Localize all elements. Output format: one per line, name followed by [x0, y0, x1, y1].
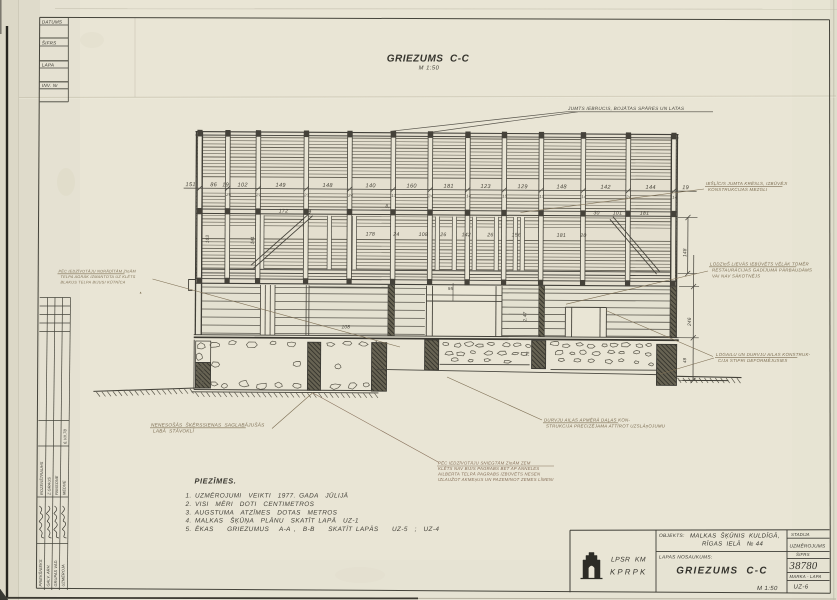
- svg-text:178: 178: [366, 232, 375, 238]
- svg-text:PĒC IEDZĪVOTĀJU SNIEGTĀM ZIņĀM: PĒC IEDZĪVOTĀJU SNIEGTĀM ZIņĀM ZEM: [438, 461, 531, 466]
- svg-text:181: 181: [640, 211, 649, 217]
- svg-text:AILBERTA TELPĀ PAGRABS IZBŪVĒT: AILBERTA TELPĀ PAGRABS IZBŪVĒTS NESEN: [437, 472, 541, 477]
- svg-text:73: 73: [525, 351, 530, 357]
- svg-text:GRIEZUMS C-C: GRIEZUMS C-C: [676, 566, 767, 577]
- svg-text:RESTAURĀCIJAS GADĪJUMĀ PĀRBAUD: RESTAURĀCIJAS GADĪJUMĀ PĀRBAUDĀMS: [712, 267, 812, 272]
- svg-text:UZMĒROJA: UZMĒROJA: [61, 564, 66, 587]
- svg-text:PIEZĪMES.: PIEZĪMES.: [195, 477, 237, 486]
- svg-text:142: 142: [462, 232, 471, 238]
- svg-text:102: 102: [238, 182, 249, 188]
- svg-text:15: 15: [502, 194, 508, 199]
- svg-text:UZMĒROJUMS: UZMĒROJUMS: [790, 544, 826, 550]
- svg-text:▲: ▲: [139, 291, 142, 295]
- svg-text:108: 108: [419, 232, 428, 238]
- svg-text:23: 23: [303, 192, 310, 197]
- svg-text:142: 142: [601, 185, 612, 191]
- svg-text:DURVJU AILAS APMĒRĀ DAĻAS KON-: DURVJU AILAS APMĒRĀ DAĻAS KON-: [544, 418, 630, 423]
- svg-text:LPSR KM: LPSR KM: [611, 557, 646, 564]
- svg-text:14: 14: [672, 195, 678, 200]
- svg-text:30: 30: [593, 210, 599, 216]
- svg-text:M 1:50: M 1:50: [757, 585, 778, 592]
- svg-text:GALV. ARH.: GALV. ARH.: [46, 564, 51, 586]
- svg-text:MARKA - LAPA: MARKA - LAPA: [790, 574, 822, 579]
- svg-text:PĒC IEDZĪVOTĀJU NORĀDĪTĀM ZIņĀ: PĒC IEDZĪVOTĀJU NORĀDĪTĀM ZIņĀM: [59, 269, 137, 274]
- svg-text:STADIJA: STADIJA: [791, 532, 810, 537]
- svg-text:TELPA AGRĀK IZMANTOTA UZ KLĒTS: TELPA AGRĀK IZMANTOTA UZ KLĒTS: [61, 274, 136, 279]
- svg-text:5. ĒKAS GRIEZUMUS A-A ,: 5. ĒKAS GRIEZUMUS A-A , B-B SKATĪT LAPĀS…: [186, 525, 440, 533]
- svg-text:LAPAS NOSAUKUMS:: LAPAS NOSAUKUMS:: [659, 554, 713, 560]
- svg-text:149: 149: [276, 183, 286, 189]
- svg-text:PRIEKŠNIEKS: PRIEKŠNIEKS: [38, 559, 43, 586]
- svg-text:148: 148: [557, 184, 568, 190]
- svg-text:IEŠĻĪCIS JUMTA KRĒSLS, IZBŪVĒJ: IEŠĻĪCIS JUMTA KRĒSLS, IZBŪVĒJI: [706, 181, 788, 186]
- svg-text:14: 14: [581, 194, 587, 199]
- svg-text:151: 151: [186, 182, 196, 188]
- svg-text:246: 246: [687, 317, 693, 327]
- svg-text:123: 123: [481, 184, 492, 190]
- svg-text:172: 172: [279, 209, 288, 215]
- svg-text:48: 48: [682, 357, 687, 363]
- svg-text:101: 101: [613, 211, 622, 217]
- svg-text:GRUPAS VAD.: GRUPAS VAD.: [53, 559, 58, 586]
- svg-text:26: 26: [439, 232, 446, 238]
- svg-text:144: 144: [646, 185, 656, 191]
- svg-text:25: 25: [225, 192, 232, 197]
- svg-text:CIJA STIPRI DEFORMĒJUSIES: CIJA STIPRI DEFORMĒJUSIES: [718, 358, 788, 363]
- svg-text:VAI NAV SĀKOTNĒJS: VAI NAV SĀKOTNĒJS: [712, 273, 760, 278]
- svg-text:86: 86: [210, 182, 217, 188]
- svg-text:KPRPK: KPRPK: [610, 568, 647, 577]
- svg-text:148: 148: [323, 183, 334, 189]
- svg-text:24: 24: [427, 193, 434, 198]
- svg-text:Z.GRAUS: Z.GRAUS: [47, 477, 52, 496]
- svg-text:8,: 8,: [385, 204, 389, 209]
- svg-text:JUMTS IEBRUCIS, BOJĀTAS SPĀRES: JUMTS IEBRUCIS, BOJĀTAS SPĀRES UN LATAS: [567, 106, 685, 111]
- svg-text:KONSTRUKCIJAS MEZGLI: KONSTRUKCIJAS MEZGLI: [708, 187, 768, 192]
- svg-text:20: 20: [579, 233, 586, 239]
- svg-text:GRIEZUMS C-C: GRIEZUMS C-C: [387, 54, 470, 65]
- svg-text:4. MALKAS ŠĶŪŅA PLĀNU SKATĪ: 4. MALKAS ŠĶŪŅA PLĀNU SKATĪT LAPĀ UZ-1: [186, 517, 359, 525]
- svg-text:2. VISI MĒRI DOTI CENTIMETR: 2. VISI MĒRI DOTI CENTIMETROS: [185, 500, 315, 508]
- svg-text:141: 141: [250, 236, 255, 245]
- svg-text:M 1:50: M 1:50: [419, 64, 440, 71]
- svg-text:INV. Nr: INV. Nr: [42, 83, 58, 88]
- svg-text:108: 108: [341, 324, 350, 330]
- svg-text:103: 103: [205, 235, 210, 244]
- svg-text:UZ-6: UZ-6: [794, 584, 809, 591]
- svg-text:129: 129: [518, 184, 528, 190]
- svg-text:DATUMS: DATUMS: [42, 19, 63, 24]
- svg-text:BLAKUS TELPA BIJUSI KŪTNĪCA: BLAKUS TELPA BIJUSI KŪTNĪCA: [61, 280, 126, 285]
- svg-text:13: 13: [391, 193, 397, 198]
- svg-text:14: 14: [466, 193, 472, 198]
- svg-text:1. UZMĒROJUMI VEIKTI 1977. G: 1. UZMĒROJUMI VEIKTI 1977. GADA JŪLIJĀ: [186, 492, 349, 500]
- svg-text:26: 26: [486, 232, 493, 238]
- svg-text:95: 95: [448, 286, 454, 291]
- svg-text:OBJEKTS:: OBJEKTS:: [659, 533, 685, 539]
- svg-text:148: 148: [682, 248, 688, 257]
- svg-text:156: 156: [512, 233, 521, 239]
- svg-text:IZLAUŽOT AKMEņUS UN PAZEMINOT: IZLAUŽOT AKMEņUS UN PAZEMINOT ZEMES LĪME…: [438, 477, 554, 482]
- svg-text:2.47: 2.47: [522, 312, 527, 323]
- svg-text:LOGAILU UN DURVJU AILAS KONSTR: LOGAILU UN DURVJU AILAS KONSTRUK-: [716, 352, 811, 357]
- svg-text:181: 181: [557, 233, 566, 239]
- svg-text:140: 140: [366, 183, 377, 189]
- svg-text:MALKAS ŠĶŪNIS KULDĪGĀ,: MALKAS ŠĶŪNIS KULDĪGĀ,: [690, 532, 780, 540]
- svg-text:38780: 38780: [789, 561, 818, 572]
- svg-text:19: 19: [222, 182, 229, 188]
- svg-text:160: 160: [407, 183, 418, 189]
- svg-text:24: 24: [392, 232, 399, 238]
- svg-text:181: 181: [444, 184, 454, 190]
- svg-text:ŠIFRS: ŠIFRS: [796, 552, 810, 557]
- svg-text:13: 13: [539, 194, 545, 199]
- svg-text:PANSONE: PANSONE: [54, 475, 59, 495]
- svg-text:STRUKCIJA PRECIZĒJAMA ATTĪROT: STRUKCIJA PRECIZĒJAMA ATTĪROT UZSLĀņOJUM…: [546, 423, 666, 428]
- svg-text:6.VII.78: 6.VII.78: [63, 428, 68, 444]
- svg-text:24: 24: [347, 193, 354, 198]
- svg-text:ROZENŠTRAUHS: ROZENŠTRAUHS: [39, 461, 44, 495]
- svg-text:LAPA: LAPA: [42, 62, 54, 67]
- svg-text:ŠIFRS: ŠIFRS: [42, 39, 57, 45]
- svg-text:24: 24: [304, 209, 311, 215]
- svg-text:MEDNE: MEDNE: [62, 480, 67, 495]
- svg-text:LABĀ STĀVOKLĪ: LABĀ STĀVOKLĪ: [153, 428, 194, 433]
- svg-text:RĪGAS IELĀ № 44: RĪGAS IELĀ № 44: [702, 541, 763, 548]
- svg-text:3. AUGSTUMA ATZĪMES DOTAS M: 3. AUGSTUMA ATZĪMES DOTAS METROS: [186, 508, 338, 516]
- svg-text:KLĒTS NAV BIJIS PAGRABS BET AP: KLĒTS NAV BIJIS PAGRABS BET AP ANNELES: [438, 466, 539, 471]
- svg-text:21: 21: [255, 192, 261, 197]
- svg-text:LODZIņŠ LIEVĀS IEBŪVĒTS VĒLĀK: LODZIņŠ LIEVĀS IEBŪVĒTS VĒLĀK TOMĒR: [710, 262, 810, 267]
- svg-text:19: 19: [682, 185, 689, 191]
